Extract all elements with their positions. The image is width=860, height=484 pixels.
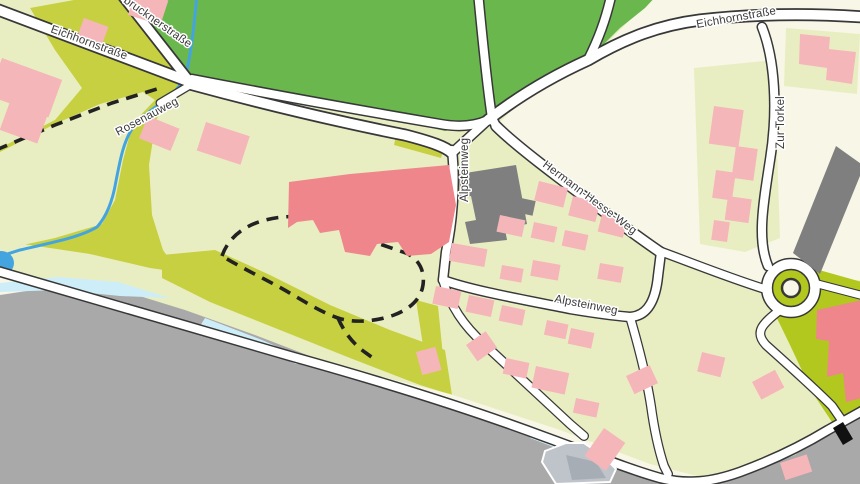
building — [709, 106, 744, 148]
building — [711, 220, 730, 242]
roundabout-island — [782, 279, 800, 297]
street-map-svg: Eichhornstraße brucknerstraße Rosenauweg… — [0, 0, 860, 484]
building — [725, 196, 752, 223]
building — [712, 170, 736, 201]
label-alpsteinweg-north: Alpsteinweg — [459, 138, 471, 202]
map-canvas[interactable]: Eichhornstraße brucknerstraße Rosenauweg… — [0, 0, 860, 484]
label-zur-torkel: Zur Torkel — [775, 96, 787, 149]
building-gray-small — [518, 198, 536, 216]
building — [732, 146, 758, 181]
